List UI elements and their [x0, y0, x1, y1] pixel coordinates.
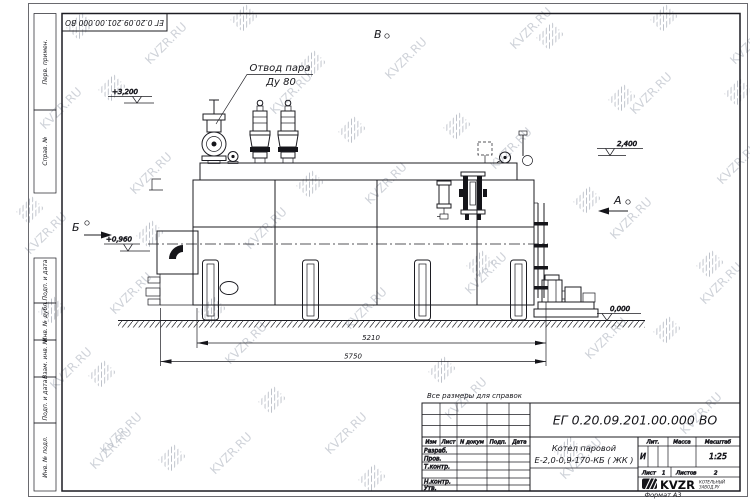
support-legs — [203, 260, 527, 320]
safety-valve — [250, 100, 270, 163]
dim-value: 5210 — [362, 334, 380, 342]
product-name-cell: Котел паровой Е-2,0-0,9-170-КБ ( ЖК ) — [530, 443, 638, 468]
elevation-mark: 0,000 — [597, 305, 641, 321]
sheet-value: 1 — [662, 471, 666, 477]
elevation-value: +0,960 — [106, 236, 132, 244]
row-label: Пров. — [424, 456, 442, 463]
elevation-value: 0,000 — [610, 305, 631, 313]
col-header: Подп. — [490, 440, 507, 446]
col-header: N докум — [460, 440, 484, 446]
elevation-value: 2,400 — [617, 140, 638, 148]
callout-steam-outlet: Отвод пара Ду 80 — [216, 63, 313, 124]
callout-text: Отвод пара — [250, 63, 311, 74]
rear-pipe — [534, 203, 548, 298]
company-logo-subtext: ЗАВОД.РУ — [699, 485, 720, 490]
view-arrow — [598, 208, 609, 215]
front-lug — [149, 179, 163, 190]
margin-label: Взам. инв. № — [42, 338, 49, 379]
row-label: Т.контр. — [424, 464, 450, 471]
margin-label: Инв. № подл. — [42, 436, 49, 477]
margin-label: Перв. примен. — [42, 39, 49, 84]
hidden-fitting-dashed — [478, 142, 492, 163]
burner-unit — [146, 179, 198, 305]
boiler-panel-joints — [193, 180, 534, 305]
steam-outlet-valve — [202, 100, 226, 164]
dim-value: 5750 — [344, 353, 362, 361]
lit-value: И — [640, 452, 646, 461]
col-header: Лист — [441, 440, 457, 446]
safety-valve — [278, 100, 298, 163]
company-logo-text: KVZR — [660, 478, 695, 492]
title-block: Изм Лист N докум Подп. Дата Разраб. Пров… — [422, 403, 740, 492]
lit-header: Лит. — [646, 440, 660, 446]
sight-glass — [437, 181, 451, 219]
gost-drawing: Перв. примен. Справ. № Подп. и дата Инв.… — [0, 0, 750, 500]
corner-stamp-number: ЕГ 0.20.09.201.00.000 ВО — [65, 18, 164, 27]
col-header: Изм — [425, 440, 436, 446]
vent-hook-fitting — [519, 131, 533, 166]
reference-note: Все размеры для справок — [427, 392, 523, 400]
support-leg — [415, 260, 431, 320]
shutoff-valve-icon — [228, 152, 238, 164]
row-label: Утв. — [424, 485, 437, 492]
sheet-cell: Лист 1 Листов 2 — [638, 467, 740, 477]
callout-text: Ду 80 — [265, 77, 296, 88]
view-letter: В — [374, 28, 382, 41]
view-label-right: А — [598, 194, 630, 215]
elevation-mark: +0,960 — [104, 236, 150, 252]
margin-label: Справ. № — [42, 136, 49, 165]
view-label-top: В — [374, 28, 389, 41]
elevation-value: +3,200 — [112, 88, 138, 96]
boiler-side-view — [118, 100, 645, 328]
view-letter: Б — [72, 221, 80, 234]
sheets-label: Листов — [675, 471, 697, 477]
margin-columns: Перв. примен. Справ. № Подп. и дата Инв.… — [34, 14, 56, 492]
mass-header: Масса — [673, 440, 691, 446]
product-name: Котел паровой — [552, 443, 617, 453]
support-leg — [303, 260, 319, 320]
boiler-body — [193, 180, 534, 305]
margin-label: Подп. и дата — [42, 379, 49, 420]
support-leg — [511, 260, 527, 320]
water-level-gauge — [459, 172, 487, 220]
view-ref-circle — [385, 34, 389, 38]
product-name: Е-2,0-0,9-170-КБ ( ЖК ) — [535, 455, 634, 465]
margin-label: Подп. и дата — [42, 259, 49, 300]
view-ref-circle — [85, 221, 89, 225]
sheets-value: 2 — [714, 471, 718, 477]
flame-icon — [169, 245, 183, 259]
elevation-mark: +3,200 — [108, 88, 154, 103]
margin-label: Инв. № дубл. — [42, 301, 49, 342]
title-doc-number: ЕГ 0.20.09.201.00.000 ВО — [553, 413, 718, 428]
company-logo: KVZR КОТЕЛЬНЫЙ ЗАВОД.РУ — [642, 478, 725, 492]
view-label-left: Б — [72, 221, 112, 239]
corner-stamp: ЕГ 0.20.09.201.00.000 ВО — [62, 14, 167, 32]
lit-mass-scale: Лит. Масса Масштаб И 1:25 — [638, 437, 740, 467]
manhole — [220, 282, 238, 295]
support-leg — [203, 260, 219, 320]
top-valve-icon — [497, 152, 511, 163]
dimension-5210: 5210 — [197, 334, 546, 345]
dimension-5750: 5750 — [161, 353, 547, 364]
scale-value: 1:25 — [709, 452, 727, 461]
view-labels: В Б А — [72, 28, 630, 239]
revision-table: Изм Лист N докум Подп. Дата Разраб. Пров… — [422, 403, 530, 492]
format-label: Формат А3 — [644, 491, 681, 499]
row-label: Разраб. — [424, 448, 448, 455]
col-header: Дата — [511, 440, 527, 446]
drawing-sheet: { "watermark": { "text": "KVZR.RU" }, "c… — [0, 0, 750, 500]
scale-header: Масштаб — [705, 440, 732, 446]
sheet-label: Лист — [641, 471, 657, 477]
view-letter: А — [613, 194, 622, 207]
view-ref-circle — [626, 200, 630, 204]
elevation-mark: 2,400 — [597, 140, 643, 156]
